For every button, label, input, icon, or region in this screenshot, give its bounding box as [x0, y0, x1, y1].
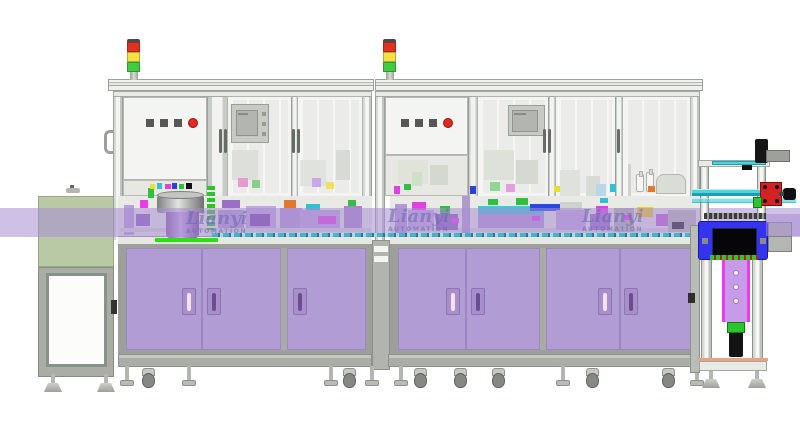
- stand-post-right: [752, 260, 763, 370]
- stand-post-left: [701, 260, 712, 370]
- drive-green-block: [753, 197, 762, 208]
- tunnel-bolt-left: [702, 238, 708, 244]
- tunnel-opening: [712, 228, 757, 256]
- drive-knob: [783, 188, 796, 200]
- tool-column-hole-2: [733, 284, 739, 290]
- brand-watermark: LianyiAUTOMATION: [582, 208, 644, 233]
- tool-nozzle: [729, 333, 743, 357]
- watermark-brand: Lianyi: [388, 208, 450, 226]
- inspection-back-knob: [688, 293, 695, 303]
- watermark-subtitle: AUTOMATION: [582, 227, 644, 233]
- watermark-brand: Lianyi: [582, 208, 644, 226]
- machine-line-render: LianyiAUTOMATIONLianyiAUTOMATIONLianyiAU…: [0, 0, 800, 438]
- drive-knob-stem: [779, 192, 784, 196]
- gantry-sensor: [742, 165, 752, 170]
- stand-base-beam: [699, 361, 767, 371]
- brand-watermark: LianyiAUTOMATION: [388, 208, 450, 233]
- side-bracket-split: [768, 236, 792, 237]
- watermark-subtitle: AUTOMATION: [388, 227, 450, 233]
- conveyor-band-right: [766, 214, 800, 236]
- conveyor-chain: [704, 213, 766, 219]
- tool-column-hole-1: [733, 270, 739, 276]
- watermark-brand: Lianyi: [186, 210, 248, 228]
- watermark-subtitle: AUTOMATION: [186, 229, 248, 235]
- tool-column-hole-3: [733, 298, 739, 304]
- brand-watermark: LianyiAUTOMATION: [186, 210, 248, 235]
- tool-green-segment: [727, 322, 745, 333]
- top-motor-arm: [766, 150, 790, 162]
- tunnel-bolt-right: [760, 238, 766, 244]
